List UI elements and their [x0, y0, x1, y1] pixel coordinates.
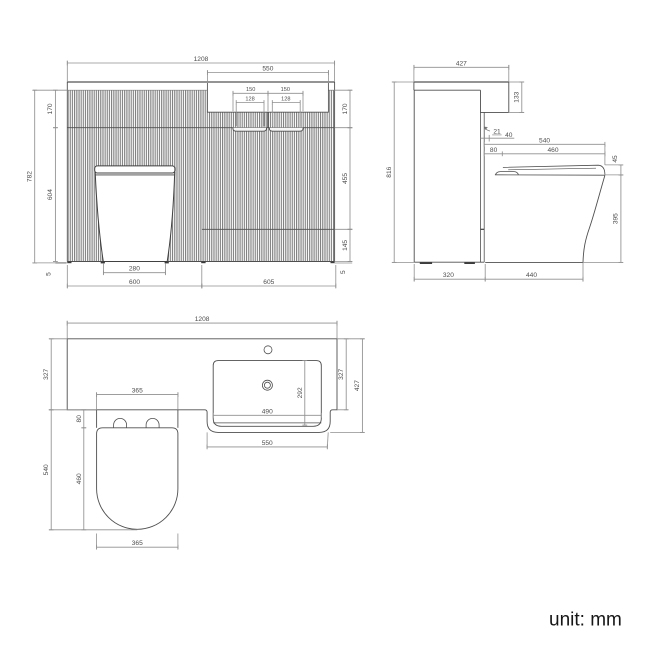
- svg-text:45: 45: [612, 155, 619, 163]
- svg-text:365: 365: [132, 388, 143, 395]
- svg-text:150: 150: [281, 87, 290, 93]
- svg-text:327: 327: [338, 368, 345, 379]
- svg-text:540: 540: [539, 137, 550, 144]
- svg-text:292: 292: [297, 387, 304, 398]
- svg-text:600: 600: [129, 279, 140, 286]
- svg-text:427: 427: [354, 380, 361, 391]
- svg-text:550: 550: [262, 440, 273, 447]
- svg-text:280: 280: [129, 266, 140, 273]
- svg-text:460: 460: [547, 147, 558, 154]
- svg-text:40: 40: [505, 132, 513, 139]
- svg-text:605: 605: [263, 279, 274, 286]
- svg-text:128: 128: [245, 97, 254, 103]
- svg-text:395: 395: [613, 213, 620, 224]
- svg-text:455: 455: [342, 173, 349, 184]
- svg-text:150: 150: [246, 87, 255, 93]
- svg-text:782: 782: [26, 171, 33, 182]
- svg-text:1208: 1208: [194, 56, 209, 63]
- svg-text:540: 540: [43, 464, 50, 475]
- svg-text:80: 80: [490, 147, 498, 154]
- svg-text:unit: mm: unit: mm: [549, 610, 622, 631]
- svg-text:604: 604: [47, 189, 54, 200]
- svg-text:550: 550: [262, 66, 273, 73]
- svg-text:440: 440: [526, 272, 537, 279]
- svg-text:816: 816: [386, 166, 393, 177]
- svg-text:327: 327: [43, 368, 50, 379]
- svg-text:490: 490: [262, 408, 273, 415]
- svg-text:170: 170: [342, 103, 349, 114]
- svg-text:128: 128: [281, 97, 290, 103]
- svg-text:170: 170: [47, 103, 54, 114]
- svg-text:145: 145: [342, 240, 349, 251]
- svg-text:5: 5: [46, 272, 53, 276]
- svg-text:460: 460: [76, 473, 83, 484]
- svg-text:365: 365: [132, 540, 143, 547]
- svg-text:133: 133: [514, 91, 521, 102]
- svg-text:427: 427: [456, 60, 467, 67]
- svg-text:80: 80: [76, 415, 83, 423]
- svg-text:1208: 1208: [195, 316, 210, 323]
- svg-text:5: 5: [340, 270, 347, 274]
- svg-text:320: 320: [443, 272, 454, 279]
